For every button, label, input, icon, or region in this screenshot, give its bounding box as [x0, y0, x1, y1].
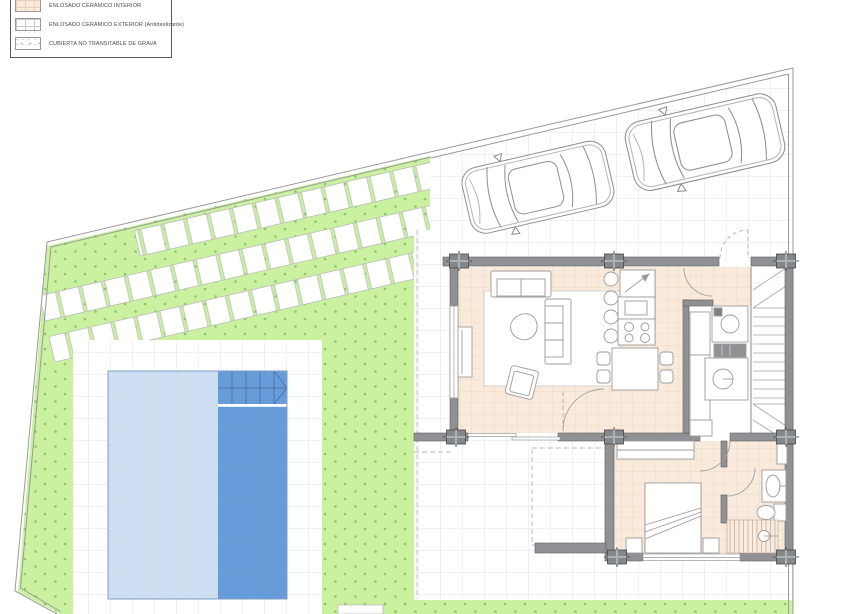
- staircase: [751, 267, 786, 441]
- toilet-tank: [774, 504, 786, 521]
- chaise-sofa: [545, 299, 571, 364]
- coffee-table: [511, 314, 537, 340]
- legend-label: ENLOSADO CERÁMICO INTERIOR: [49, 3, 141, 9]
- legend-item: CUBIERTA NO TRANSITABLE DE GRAVA: [15, 34, 171, 53]
- window-bedroom: [643, 554, 740, 561]
- tv-unit: [458, 327, 472, 377]
- legend: ENLOSADO CERÁMICO INTERIOR ENLOSADO CERÁ…: [10, 0, 172, 58]
- utility-appliances: [690, 306, 748, 436]
- legend-item: ENLOSADO CERÁMICO INTERIOR: [15, 0, 171, 15]
- pool: [108, 371, 287, 599]
- legend-label: CUBIERTA NO TRANSITABLE DE GRAVA: [49, 41, 157, 47]
- nightstand: [703, 538, 719, 553]
- cooktop: [618, 319, 655, 345]
- legend-item: ENLOSADO CERÁMICO EXTERIOR (Antideslizan…: [15, 15, 171, 34]
- bottom-paver: [338, 605, 383, 614]
- bed: [645, 483, 701, 553]
- toilet-bowl: [757, 506, 775, 520]
- swatch-ceramic-exterior: [15, 18, 41, 31]
- nightstand: [626, 538, 642, 553]
- swatch-ceramic-interior: [15, 0, 41, 12]
- swatch-gravel-roof: [15, 37, 41, 50]
- site-plan-svg: [0, 0, 850, 614]
- window-left: [450, 306, 458, 398]
- sofa: [491, 271, 551, 297]
- legend-label: ENLOSADO CERÁMICO EXTERIOR (Antideslizan…: [49, 22, 184, 28]
- floor-plan-canvas: ENLOSADO CERÁMICO INTERIOR ENLOSADO CERÁ…: [0, 0, 850, 614]
